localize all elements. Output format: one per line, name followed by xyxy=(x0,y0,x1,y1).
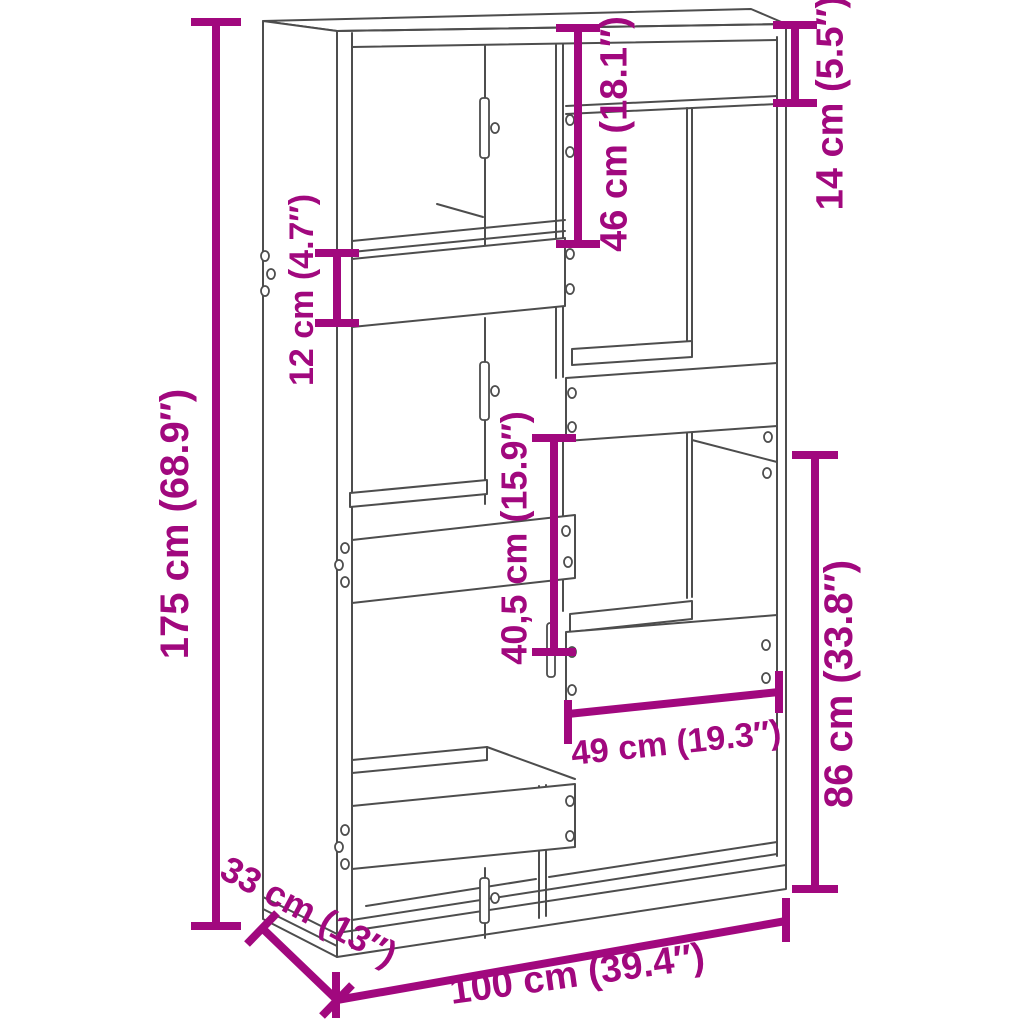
dimension-top-right-14: 14 cm (5.5″) xyxy=(773,0,851,210)
dimension-height-175: 175 cm (68.9″) xyxy=(153,22,241,926)
divider-center-middle xyxy=(556,306,563,378)
shelf-board-top-left xyxy=(352,238,565,327)
screw-hole xyxy=(568,685,576,695)
compartment-depth-line-left xyxy=(487,747,575,779)
dimension-diagram-page: 175 cm (68.9″) 46 cm (18.1″) 14 cm (5.5″… xyxy=(0,0,1024,1024)
screw-hole xyxy=(261,286,269,296)
screw-hole xyxy=(568,388,576,398)
shelf-board-upper-right xyxy=(566,363,777,441)
divider-center-upper xyxy=(556,44,563,240)
screw-hole xyxy=(341,577,349,587)
bookcase-floor-front-edge xyxy=(352,854,777,920)
screw-hole xyxy=(762,640,770,650)
screw-hole xyxy=(341,859,349,869)
bookcase-inner-edge-top xyxy=(352,40,777,47)
ledge-above-bottom-left-band xyxy=(352,747,487,773)
divider-right-upper xyxy=(687,108,692,341)
divider-slot xyxy=(480,362,489,420)
screw-hole xyxy=(261,251,269,261)
compartment-depth-line-right xyxy=(692,440,777,462)
dimension-right-section-86: 86 cm (33.8″) xyxy=(792,455,861,889)
screw-hole xyxy=(566,796,574,806)
ledge-above-right-band xyxy=(572,341,692,365)
bookcase-floor-back-edge-left xyxy=(366,879,536,906)
screw-hole xyxy=(267,269,275,279)
divider-slot xyxy=(480,878,489,923)
dimension-width-100: 100 cm (39.4″) xyxy=(336,898,786,1018)
divider-right-lower xyxy=(687,424,692,598)
dimension-label-total-height: 175 cm (68.9″) xyxy=(153,389,197,659)
screw-hole xyxy=(491,386,499,396)
screw-hole xyxy=(566,284,574,294)
screw-hole xyxy=(564,557,572,567)
bookcase-left-side-panel xyxy=(263,21,337,957)
dimension-label-total-width: 100 cm (39.4″) xyxy=(447,936,707,1013)
screw-hole xyxy=(764,432,772,442)
dimension-label-lower-right-section: 86 cm (33.8″) xyxy=(817,560,861,808)
screw-hole xyxy=(762,673,770,683)
screw-hole xyxy=(566,249,574,259)
screw-hole xyxy=(335,560,343,570)
screw-hole xyxy=(341,825,349,835)
screw-hole xyxy=(566,147,574,157)
dimension-label-top-section: 46 cm (18.1″) xyxy=(593,16,635,252)
screw-hole xyxy=(566,831,574,841)
screw-hole xyxy=(491,893,499,903)
divider-slot xyxy=(480,98,489,158)
dimension-diagram: 175 cm (68.9″) 46 cm (18.1″) 14 cm (5.5″… xyxy=(0,0,1024,1024)
dimension-label-inner-width: 49 cm (19.3″) xyxy=(569,713,783,773)
dimension-annotations: 175 cm (68.9″) 46 cm (18.1″) 14 cm (5.5″… xyxy=(153,0,861,1018)
compartment-depth-line-top-left xyxy=(437,204,483,217)
ledge-mid-left xyxy=(350,480,487,507)
screw-hole xyxy=(566,115,574,125)
shelf-board-mid-left xyxy=(352,515,575,603)
screw-hole xyxy=(491,123,499,133)
dimension-top-section-46: 46 cm (18.1″) xyxy=(556,16,635,252)
dimension-label-shelf-board: 12 cm (4.7″) xyxy=(283,194,321,386)
screw-hole xyxy=(568,422,576,432)
screw-hole xyxy=(341,543,349,553)
dimension-label-middle-compartment: 40,5 cm (15.9″) xyxy=(494,411,535,664)
screw-hole xyxy=(562,526,570,536)
dimension-label-top-shelf: 14 cm (5.5″) xyxy=(809,0,851,210)
screw-hole xyxy=(335,842,343,852)
screw-hole xyxy=(763,468,771,478)
shelf-board-bottom-left xyxy=(352,784,575,869)
